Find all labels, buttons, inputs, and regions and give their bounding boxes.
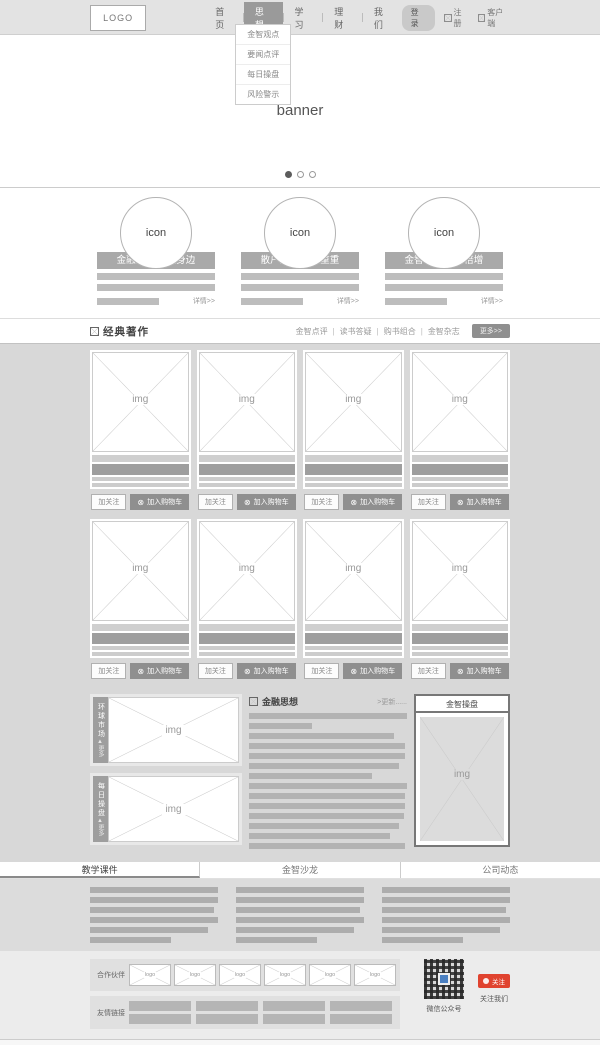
news-item-bar[interactable] <box>249 773 372 779</box>
partner-logo-placeholder[interactable]: logo <box>264 964 306 986</box>
text-placeholder-bar <box>92 646 189 650</box>
register-icon <box>444 14 452 22</box>
header-auth: 登录 注册 客户端 <box>402 5 510 31</box>
follow-caption: 关注我们 <box>478 994 510 1004</box>
follow-button[interactable]: 加关注 <box>411 663 446 679</box>
main-nav: 首页 思想 金智观点 要闻点评 每日操盘 风险警示 学习 理财 我们 <box>204 2 401 34</box>
text-placeholder-bar <box>236 907 360 913</box>
add-to-cart-button[interactable]: ⊗ 加入购物车 <box>130 494 189 510</box>
cart-label: 加入购物车 <box>467 497 502 507</box>
tab-content-section <box>0 879 600 951</box>
banner-carousel[interactable]: banner <box>0 35 600 188</box>
news-item-bar[interactable] <box>249 723 312 729</box>
feature-card-3: icon 金智 助您财富倍增 详情>> <box>385 197 503 306</box>
text-placeholder-bar <box>305 652 402 656</box>
text-placeholder-bar <box>199 455 296 462</box>
img-placeholder-label: img <box>162 725 186 736</box>
text-placeholder-bar <box>236 937 317 943</box>
product-grid-section: img 加关注 ⊗ 加入购物车 img 加关注 <box>0 344 600 692</box>
friend-link-placeholder[interactable] <box>129 1001 191 1011</box>
middle-section: 环球市场 ▲更多 img 每日操盘 ▲更多 img 金融思想 <box>0 692 600 862</box>
dropdown-item-viewpoint[interactable]: 金智观点 <box>236 25 290 45</box>
product-card: img 加关注 ⊗ 加入购物车 <box>197 350 298 517</box>
text-placeholder-bar <box>385 284 503 291</box>
partner-logo-placeholder[interactable]: logo <box>174 964 216 986</box>
text-placeholder-bar <box>241 273 359 280</box>
partner-logo-placeholder[interactable]: logo <box>354 964 396 986</box>
text-column <box>382 887 510 943</box>
classics-tab-qa[interactable]: 读书答疑 <box>340 326 372 337</box>
feature-section: icon 金融浪潮 就在身边 详情>> icon 散户投资 困惑重重 详情>> … <box>0 188 600 319</box>
text-placeholder-bar <box>305 646 402 650</box>
lower-tab-bar: 教学课件 金智沙龙 公司动态 <box>0 862 600 879</box>
news-item-bar[interactable] <box>249 823 399 829</box>
text-placeholder-bar <box>97 273 215 280</box>
nav-item-finance[interactable]: 理财 <box>323 2 362 34</box>
product-image-placeholder: img <box>412 521 509 621</box>
feature-detail-link[interactable]: 详情>> <box>193 296 215 306</box>
daily-trading-tab[interactable]: 每日操盘 ▲更多 <box>93 776 108 842</box>
tab-separator: | <box>421 327 423 336</box>
tab-teaching-courseware[interactable]: 教学课件 <box>0 862 200 878</box>
text-placeholder-bar <box>412 633 509 644</box>
text-placeholder-bar <box>90 907 214 913</box>
product-row: img 加关注 ⊗ 加入购物车 img 加关注 <box>90 350 510 517</box>
weibo-icon <box>483 978 489 984</box>
client-icon <box>478 14 486 22</box>
trading-panel: 金智操盘 img <box>414 694 510 847</box>
img-placeholder-label: img <box>448 394 472 405</box>
img-placeholder-label: img <box>235 394 259 405</box>
text-placeholder-bar <box>305 633 402 644</box>
weibo-follow-button[interactable]: 关注 <box>478 974 510 988</box>
text-placeholder-bar <box>90 897 218 903</box>
carousel-dot[interactable] <box>297 171 304 178</box>
friend-link-placeholder[interactable] <box>196 1001 258 1011</box>
nav-dropdown: 金智观点 要闻点评 每日操盘 风险警示 <box>235 24 291 105</box>
img-placeholder-label: img <box>448 563 472 574</box>
cart-label: 加入购物车 <box>147 666 182 676</box>
tab-salon[interactable]: 金智沙龙 <box>200 862 400 878</box>
logo-placeholder-label: logo <box>234 972 246 978</box>
product-card: img 加关注 ⊗ 加入购物车 <box>197 519 298 686</box>
text-column <box>90 887 218 943</box>
global-market-tab[interactable]: 环球市场 ▲更多 <box>93 697 108 763</box>
text-placeholder-bar <box>92 652 189 656</box>
friend-links-label: 友情链接 <box>97 1008 129 1018</box>
logo-placeholder-label: logo <box>189 972 201 978</box>
panel-image-placeholder: img <box>108 776 239 842</box>
img-placeholder-label: img <box>162 804 186 815</box>
text-placeholder-bar <box>92 477 189 481</box>
footer: 合作伙伴 logo logo logo logo logo logo 友情链接 <box>0 951 600 1039</box>
img-placeholder-label: img <box>128 394 152 405</box>
img-placeholder-label: img <box>128 563 152 574</box>
logo-placeholder-label: logo <box>324 972 336 978</box>
text-placeholder-bar <box>412 455 509 462</box>
text-placeholder-bar <box>90 927 208 933</box>
text-placeholder-bar <box>241 298 303 305</box>
add-to-cart-button[interactable]: ⊗ 加入购物车 <box>130 663 189 679</box>
product-card: img 加关注 ⊗ 加入购物车 <box>410 350 511 517</box>
classics-more-button[interactable]: 更多>> <box>472 324 510 338</box>
panel-more-link[interactable]: ▲更多 <box>96 818 105 836</box>
text-placeholder-bar <box>382 897 510 903</box>
product-card: img 加关注 ⊗ 加入购物车 <box>90 350 191 517</box>
text-placeholder-bar <box>305 455 402 462</box>
text-placeholder-bar <box>97 298 159 305</box>
classics-section-header: 经典著作 金智点评 | 读书答疑 | 购书组合 | 金智杂志 更多>> <box>0 319 600 344</box>
text-placeholder-bar <box>236 917 364 923</box>
follow-button[interactable]: 加关注 <box>198 663 233 679</box>
classics-tab-bundle[interactable]: 购书组合 <box>384 326 416 337</box>
cart-icon: ⊗ <box>137 499 144 506</box>
bottom-strip <box>0 1039 600 1045</box>
text-placeholder-bar <box>199 483 296 487</box>
text-placeholder-bar <box>236 927 354 933</box>
text-placeholder-bar <box>305 464 402 475</box>
friend-link-placeholder[interactable] <box>330 1014 392 1024</box>
panel-image-placeholder: img <box>108 697 239 763</box>
login-button[interactable]: 登录 <box>402 5 435 31</box>
product-image-placeholder: img <box>92 521 189 621</box>
friend-link-placeholder[interactable] <box>196 1014 258 1024</box>
daily-trading-panel: 每日操盘 ▲更多 img <box>90 773 242 845</box>
logo-placeholder-label: logo <box>144 972 156 978</box>
feature-card-2: icon 散户投资 困惑重重 详情>> <box>241 197 359 306</box>
header: LOGO 首页 思想 金智观点 要闻点评 每日操盘 风险警示 学习 理财 我们 … <box>0 0 600 35</box>
carousel-dot[interactable] <box>309 171 316 178</box>
cart-icon: ⊗ <box>244 668 251 675</box>
logo[interactable]: LOGO <box>90 5 146 31</box>
cart-label: 加入购物车 <box>360 666 395 676</box>
carousel-dot-active[interactable] <box>285 171 292 178</box>
text-placeholder-bar <box>305 624 402 631</box>
product-image-placeholder: img <box>305 352 402 452</box>
news-item-bar[interactable] <box>249 813 404 819</box>
news-item-bar[interactable] <box>249 793 405 799</box>
news-item-bar[interactable] <box>249 783 407 789</box>
product-image-placeholder: img <box>305 521 402 621</box>
text-placeholder-bar <box>90 917 218 923</box>
cart-label: 加入购物车 <box>467 666 502 676</box>
text-placeholder-bar <box>92 624 189 631</box>
news-item-bar[interactable] <box>249 833 390 839</box>
cart-icon: ⊗ <box>350 668 357 675</box>
text-placeholder-bar <box>412 477 509 481</box>
news-item-bar[interactable] <box>249 713 407 719</box>
img-placeholder-label: img <box>235 563 259 574</box>
text-placeholder-bar <box>241 284 359 291</box>
text-placeholder-bar <box>382 907 506 913</box>
news-item-bar[interactable] <box>249 743 405 749</box>
classics-tabs: 金智点评 | 读书答疑 | 购书组合 | 金智杂志 <box>296 326 460 337</box>
partner-logo-placeholder[interactable]: logo <box>219 964 261 986</box>
feature-detail-link[interactable]: 详情>> <box>337 296 359 306</box>
panel-more-link[interactable]: ▲更多 <box>96 739 105 757</box>
img-placeholder-label: img <box>341 394 365 405</box>
news-more-link[interactable]: >更新...... <box>377 697 407 707</box>
text-placeholder-bar <box>97 284 215 291</box>
classics-tab-review[interactable]: 金智点评 <box>296 326 328 337</box>
nav-item-about[interactable]: 我们 <box>363 2 402 34</box>
text-placeholder-bar <box>199 477 296 481</box>
follow-button[interactable]: 加关注 <box>304 663 339 679</box>
text-placeholder-bar <box>385 273 503 280</box>
text-placeholder-bar <box>382 917 510 923</box>
section-icon <box>90 327 99 336</box>
friend-links-row: 友情链接 <box>90 996 400 1029</box>
text-placeholder-bar <box>92 633 189 644</box>
text-placeholder-bar <box>305 477 402 481</box>
trading-image-placeholder: img <box>420 717 504 841</box>
text-placeholder-bar <box>199 646 296 650</box>
tab-separator: | <box>377 327 379 336</box>
feature-icon-placeholder: icon <box>408 197 480 269</box>
cart-label: 加入购物车 <box>254 497 289 507</box>
text-column <box>236 887 364 943</box>
text-placeholder-bar <box>236 897 364 903</box>
text-placeholder-bar <box>382 887 510 893</box>
product-image-placeholder: img <box>199 352 296 452</box>
vertical-tab-label: 每日操盘 <box>96 782 106 818</box>
text-placeholder-bar <box>199 652 296 656</box>
product-image-placeholder: img <box>199 521 296 621</box>
add-to-cart-button[interactable]: ⊗ 加入购物车 <box>343 494 402 510</box>
product-image-placeholder: img <box>92 352 189 452</box>
partner-logo-placeholder[interactable]: logo <box>129 964 171 986</box>
global-market-panel: 环球市场 ▲更多 img <box>90 694 242 766</box>
text-placeholder-bar <box>412 483 509 487</box>
add-to-cart-button[interactable]: ⊗ 加入购物车 <box>450 663 509 679</box>
friend-link-placeholder[interactable] <box>129 1014 191 1024</box>
text-placeholder-bar <box>90 937 171 943</box>
text-placeholder-bar <box>199 624 296 631</box>
classics-title: 经典著作 <box>103 324 149 339</box>
text-placeholder-bar <box>382 937 463 943</box>
text-placeholder-bar <box>92 455 189 462</box>
tab-company-news[interactable]: 公司动态 <box>401 862 600 878</box>
register-link[interactable]: 注册 <box>444 7 469 29</box>
feature-icon-placeholder: icon <box>120 197 192 269</box>
text-placeholder-bar <box>236 887 364 893</box>
add-to-cart-button[interactable]: ⊗ 加入购物车 <box>343 663 402 679</box>
add-to-cart-button[interactable]: ⊗ 加入购物车 <box>237 663 296 679</box>
client-label: 客户端 <box>487 7 510 29</box>
follow-button[interactable]: 加关注 <box>198 494 233 510</box>
text-placeholder-bar <box>92 464 189 475</box>
trading-panel-title: 金智操盘 <box>416 696 508 713</box>
img-placeholder-label: img <box>341 563 365 574</box>
product-card: img 加关注 ⊗ 加入购物车 <box>303 350 404 517</box>
news-list-title: 金融思想 <box>262 695 298 708</box>
news-item-bar[interactable] <box>249 733 394 739</box>
news-item-bar[interactable] <box>249 843 405 849</box>
client-link[interactable]: 客户端 <box>478 7 510 29</box>
cart-label: 加入购物车 <box>254 666 289 676</box>
follow-button[interactable]: 加关注 <box>91 663 126 679</box>
partners-row: 合作伙伴 logo logo logo logo logo logo <box>90 959 400 991</box>
product-card: img 加关注 ⊗ 加入购物车 <box>303 519 404 686</box>
feature-icon-placeholder: icon <box>264 197 336 269</box>
tab-separator: | <box>333 327 335 336</box>
news-item-bar[interactable] <box>249 763 399 769</box>
text-placeholder-bar <box>199 464 296 475</box>
register-label: 注册 <box>454 7 469 29</box>
nav-item-thought[interactable]: 思想 金智观点 要闻点评 每日操盘 风险警示 <box>244 2 283 34</box>
follow-button[interactable]: 加关注 <box>411 494 446 510</box>
text-placeholder-bar <box>412 652 509 656</box>
follow-badge-label: 关注 <box>492 976 505 986</box>
follow-button[interactable]: 加关注 <box>304 494 339 510</box>
follow-button[interactable]: 加关注 <box>91 494 126 510</box>
carousel-dots <box>0 171 600 178</box>
product-card: img 加关注 ⊗ 加入购物车 <box>410 519 511 686</box>
cart-label: 加入购物车 <box>147 497 182 507</box>
vertical-tab-label: 环球市场 <box>96 703 106 739</box>
classics-tab-magazine[interactable]: 金智杂志 <box>428 326 460 337</box>
text-placeholder-bar <box>385 298 447 305</box>
text-placeholder-bar <box>382 927 500 933</box>
product-image-placeholder: img <box>412 352 509 452</box>
text-placeholder-bar <box>412 624 509 631</box>
add-to-cart-button[interactable]: ⊗ 加入购物车 <box>450 494 509 510</box>
wechat-qr-code <box>424 959 464 999</box>
product-card: img 加关注 ⊗ 加入购物车 <box>90 519 191 686</box>
text-placeholder-bar <box>412 464 509 475</box>
text-placeholder-bar <box>90 887 218 893</box>
product-row: img 加关注 ⊗ 加入购物车 img 加关注 <box>90 519 510 686</box>
qr-caption: 微信公众号 <box>424 1004 464 1014</box>
cart-icon: ⊗ <box>457 668 464 675</box>
news-item-bar[interactable] <box>249 753 405 759</box>
add-to-cart-button[interactable]: ⊗ 加入购物车 <box>237 494 296 510</box>
img-placeholder-label: img <box>450 769 474 780</box>
cart-icon: ⊗ <box>137 668 144 675</box>
qr-center-logo <box>438 973 450 985</box>
feature-detail-link[interactable]: 详情>> <box>481 296 503 306</box>
financial-thought-list: 金融思想 >更新...... <box>249 694 407 852</box>
cart-icon: ⊗ <box>350 499 357 506</box>
partner-logo-placeholder[interactable]: logo <box>309 964 351 986</box>
section-icon <box>249 697 258 706</box>
feature-card-1: icon 金融浪潮 就在身边 详情>> <box>97 197 215 306</box>
friend-link-placeholder[interactable] <box>263 1014 325 1024</box>
text-placeholder-bar <box>199 633 296 644</box>
logo-placeholder-label: logo <box>279 972 291 978</box>
friend-link-placeholder[interactable] <box>330 1001 392 1011</box>
logo-label: LOGO <box>101 13 135 23</box>
cart-label: 加入购物车 <box>360 497 395 507</box>
text-placeholder-bar <box>92 483 189 487</box>
text-placeholder-bar <box>412 646 509 650</box>
news-item-bar[interactable] <box>249 803 405 809</box>
text-placeholder-bar <box>305 483 402 487</box>
friend-link-placeholder[interactable] <box>263 1001 325 1011</box>
logo-placeholder-label: logo <box>369 972 381 978</box>
dropdown-item-daily-trading[interactable]: 每日操盘 <box>236 65 290 85</box>
cart-icon: ⊗ <box>457 499 464 506</box>
dropdown-item-news-review[interactable]: 要闻点评 <box>236 45 290 65</box>
dropdown-item-risk-warning[interactable]: 风险警示 <box>236 85 290 104</box>
partners-label: 合作伙伴 <box>97 970 129 980</box>
cart-icon: ⊗ <box>244 499 251 506</box>
